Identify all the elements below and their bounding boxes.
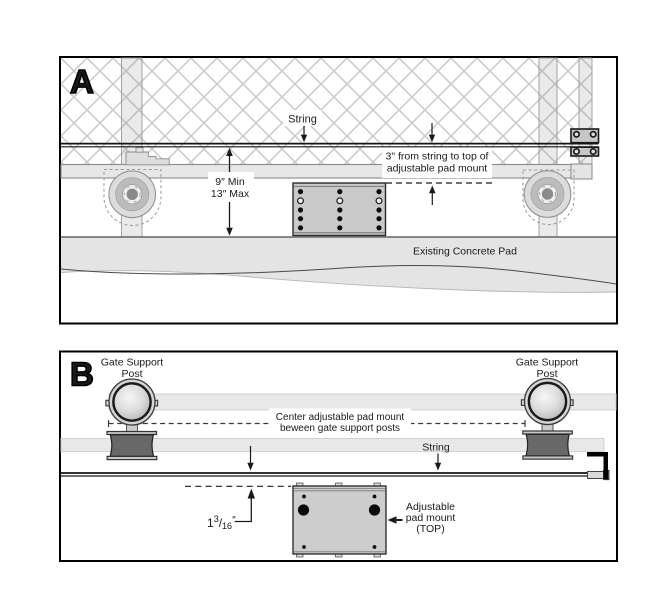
svg-text:Center adjustable pad mount: Center adjustable pad mount	[276, 412, 405, 423]
svg-text:3" from string to top of: 3" from string to top of	[386, 151, 489, 163]
svg-text:adjustable pad mount: adjustable pad mount	[387, 163, 487, 175]
svg-text:Post: Post	[121, 368, 142, 380]
svg-text:Existing Concrete Pad: Existing Concrete Pad	[413, 246, 517, 258]
svg-text:(TOP): (TOP)	[416, 523, 444, 535]
svg-text:Gate Support: Gate Support	[101, 357, 164, 369]
svg-text:B: B	[70, 356, 94, 393]
svg-text:9″ Min: 9″ Min	[215, 176, 245, 188]
svg-text:beween gate support posts: beween gate support posts	[280, 423, 400, 434]
svg-text:String: String	[288, 114, 317, 126]
svg-text:Gate Support: Gate Support	[516, 357, 579, 369]
svg-text:Post: Post	[536, 368, 557, 380]
svg-text:13″ Max: 13″ Max	[211, 188, 250, 200]
svg-text:A: A	[70, 63, 94, 100]
svg-text:String: String	[422, 442, 450, 454]
svg-text:13/16″: 13/16″	[207, 514, 236, 531]
